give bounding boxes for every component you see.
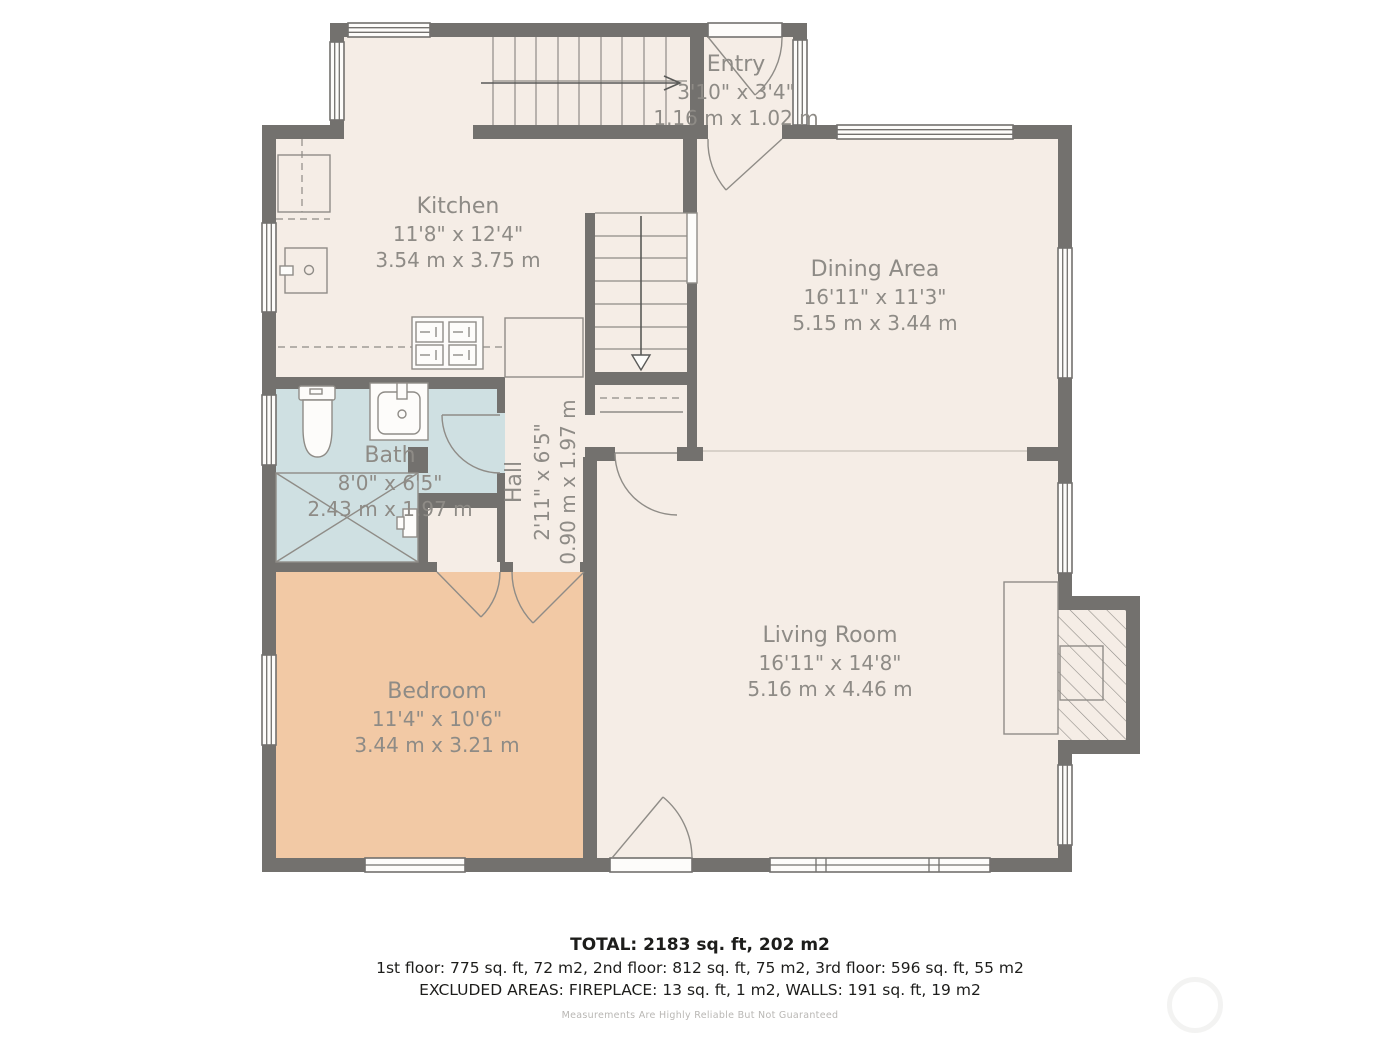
window-bump-left [330, 42, 344, 120]
floorplan-svg [0, 0, 1400, 1050]
window-bedroom-bottom [365, 858, 465, 872]
window-living-bottom [770, 858, 990, 872]
window-living-right-lower [1058, 765, 1072, 845]
stove-icon [412, 317, 483, 369]
window-dining-right [1058, 248, 1072, 378]
watermark-circle [1167, 977, 1223, 1033]
window-bump-top [348, 23, 430, 37]
window-bedroom-left [262, 655, 276, 745]
vanity-sink-icon [370, 383, 428, 440]
total-area-text: TOTAL: 2183 sq. ft, 202 m2 [0, 934, 1400, 957]
window-living-right-upper [1058, 483, 1072, 573]
floor-plan-page: Entry 3'10" x 3'4" 1.16 m x 1.02 m Kitch… [0, 0, 1400, 1050]
window-kitchen-left [262, 223, 276, 312]
stair-railing [687, 213, 697, 283]
floor-areas-text: 1st floor: 775 sq. ft, 72 m2, 2nd floor:… [0, 957, 1400, 979]
window-bath-left [262, 395, 276, 465]
window-dining-top [837, 125, 1013, 139]
window-entry-side [793, 40, 807, 125]
